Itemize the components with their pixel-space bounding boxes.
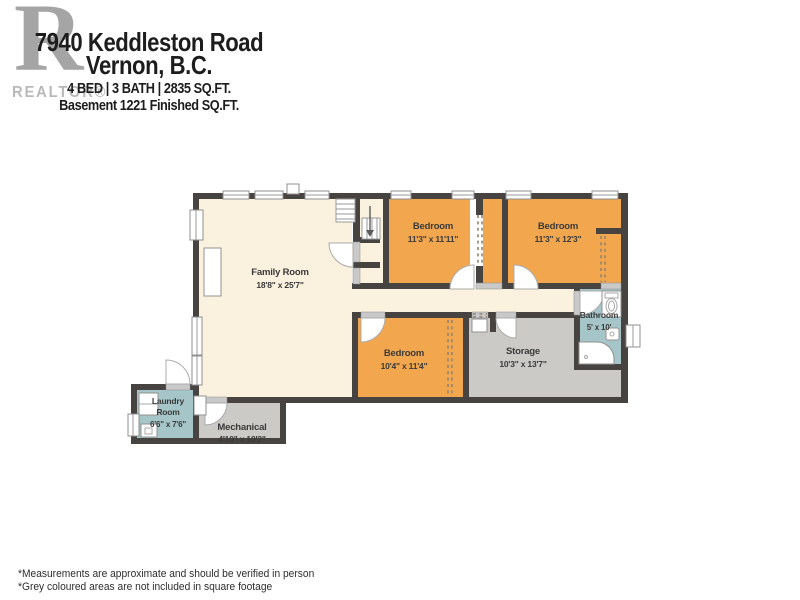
bedroom1-dims: 11'3" x 11'11" — [408, 234, 459, 244]
mechanical-dims: 4'10" x 10'2" — [218, 434, 265, 444]
measurements-disclaimer: *Measurements are approximate and should… — [18, 568, 314, 580]
storage-label: Storage — [506, 346, 540, 357]
closet-column-fill — [483, 199, 502, 283]
grey-areas-disclaimer: *Grey coloured areas are not included in… — [18, 581, 272, 593]
hallway-fill — [352, 289, 574, 312]
laundry-exterior-door — [166, 360, 190, 384]
bedroom3-dims: 10'4" x 11'4" — [381, 361, 428, 371]
mechanical-label: Mechanical — [217, 422, 266, 433]
chimney-notch — [287, 184, 299, 194]
family-room-dims: 18'8" x 25'7" — [256, 280, 303, 290]
bedroom3-label: Bedroom — [384, 348, 424, 359]
laundry-label-line2: Room — [156, 407, 180, 417]
bedroom2-dims: 11'3" x 12'3" — [535, 234, 582, 244]
fireplace — [204, 248, 221, 296]
storage-cabinet — [472, 319, 487, 332]
laundry-label-line1: Laundry — [152, 396, 185, 406]
laundry-dims: 6'6" x 7'6" — [150, 420, 186, 429]
bathroom-label: Bathroom — [580, 310, 619, 320]
floor-plan-page: R REALTOR® 7940 Keddleston Road Vernon, … — [0, 0, 800, 600]
family-room-label: Family Room — [251, 267, 308, 278]
bedroom1-label: Bedroom — [413, 221, 453, 232]
bedroom2-label: Bedroom — [538, 221, 578, 232]
storage-dims: 10'3" x 13'7" — [499, 359, 546, 369]
laundry-door-panel — [194, 396, 206, 415]
storage-under-bath-fill — [574, 370, 621, 397]
floor-plan-drawing: Family Room 18'8" x 25'7" Bedroom 11'3" … — [0, 0, 800, 600]
bathroom-dims: 5' x 10' — [587, 323, 612, 332]
family-room-fill — [199, 199, 352, 397]
